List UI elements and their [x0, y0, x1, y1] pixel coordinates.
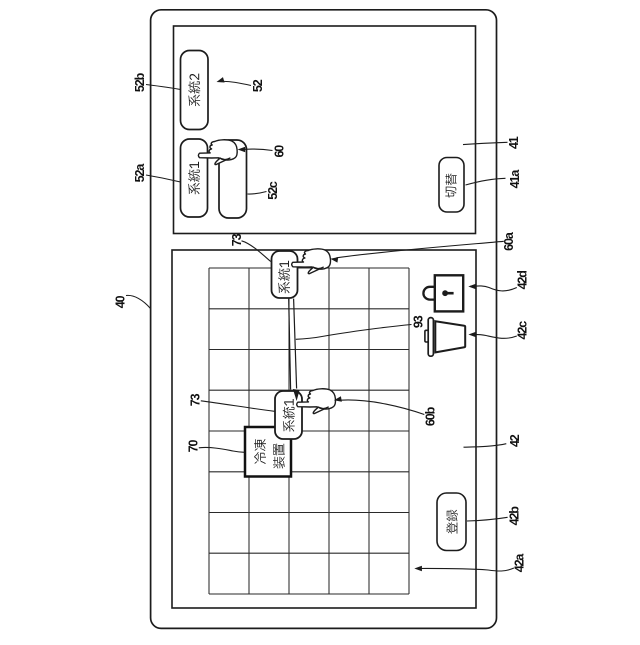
svg-text:41: 41 — [507, 136, 521, 149]
svg-text:42c: 42c — [515, 321, 529, 340]
svg-text:40: 40 — [113, 295, 127, 308]
svg-text:42a: 42a — [512, 553, 526, 573]
svg-text:42b: 42b — [508, 506, 522, 526]
svg-text:41a: 41a — [508, 169, 522, 189]
svg-text:93: 93 — [411, 315, 425, 328]
svg-text:42d: 42d — [515, 271, 529, 290]
svg-text:73: 73 — [188, 393, 202, 406]
svg-text:60b: 60b — [424, 406, 438, 426]
svg-text:52a: 52a — [133, 163, 147, 183]
svg-text:52b: 52b — [133, 72, 147, 92]
svg-text:60a: 60a — [502, 231, 516, 251]
svg-text:60: 60 — [273, 145, 287, 158]
svg-text:70: 70 — [186, 440, 200, 453]
svg-text:52c: 52c — [266, 181, 280, 200]
svg-text:42: 42 — [508, 434, 522, 447]
svg-text:52: 52 — [251, 79, 265, 92]
svg-text:73: 73 — [230, 233, 244, 246]
